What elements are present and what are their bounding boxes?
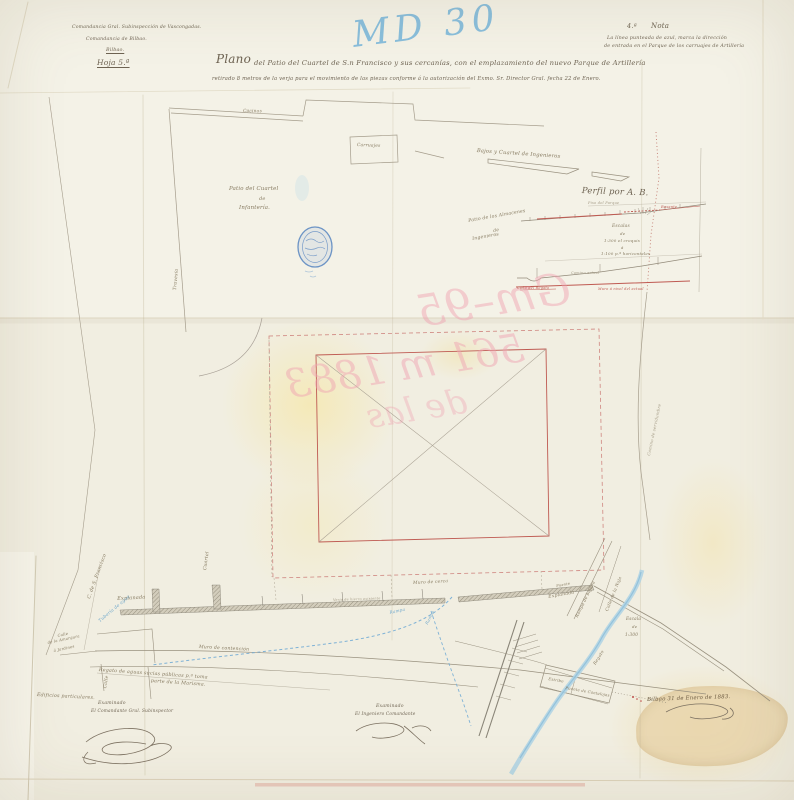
profile-section-2 [516,254,702,290]
plan-scale: de [632,624,637,629]
profile-scales: de [620,231,625,236]
label-patio-cuartel: Infantería. [239,205,270,211]
profile-scales: 1:300 el croquis [604,238,640,243]
parque-rectangles [199,318,604,600]
signature-right-heading: Examinado [376,704,404,709]
blue-entrance-dashes [152,597,471,726]
nota-heading: Nota [651,22,669,30]
header-command-line2: Comandancia de Bilbao. [86,37,147,42]
profile-scales: 1:100 p.ª horizontales [601,251,650,256]
profile-scales: Escalas [612,224,630,229]
profile-cano-regato-label: Caño del Regato [517,286,549,290]
fold-seams [0,0,794,800]
signature-left-role: El Comandante Gral. Subinspector [91,709,173,714]
scanned-plan-sheet: Gm–95 561 m 1883 de las MD 30 Comandanci… [0,0,794,800]
plan-subtitle: retirado 8 metros de la verja para el mo… [212,76,601,82]
header-sheet-number: Hoja 5.ª [97,58,130,67]
profile-rasante-label: Rasante [661,205,677,209]
signature-left-heading: Examinado [98,701,126,706]
label-patio-cuartel: Patio del Cuartel [229,186,278,192]
nota-number: 4.ª [627,22,637,30]
label-cocinas: Cocinas [243,109,262,114]
plan-scale: 1:300 [625,632,638,637]
street-lines [60,538,770,738]
nota-line: de entrada en el Parque de los carruajes… [604,44,744,49]
profile-muro-nivel-label: Muro á nivel del actual [598,287,644,291]
header-city: Bilbao. [106,48,124,53]
profile-camino-actual-label: Camino actual [571,271,599,275]
plan-title-rest: del Patio del Cuartel de S.n Francisco y… [254,59,646,67]
label-patio-cuartel: de [259,196,266,202]
profile-piso-label: Piso del Parque [588,201,619,205]
profile-scales: á [621,245,624,250]
stream [511,570,642,774]
plan-title-lead: Plano [216,52,251,66]
blue-stamp [295,175,332,277]
signature-right-role: El Ingeniero Comandante [355,712,416,717]
label-carruajes: Carruajes [357,143,381,149]
ingenieros-wall-sections [488,159,629,181]
plan-linework [0,0,794,800]
plan-scale: Escala [626,616,641,621]
nota-line: La línea punteada de azul, marca la dire… [607,36,727,41]
header-command-line1: Comandancia Gral. Subinspección de Vasco… [72,25,201,30]
